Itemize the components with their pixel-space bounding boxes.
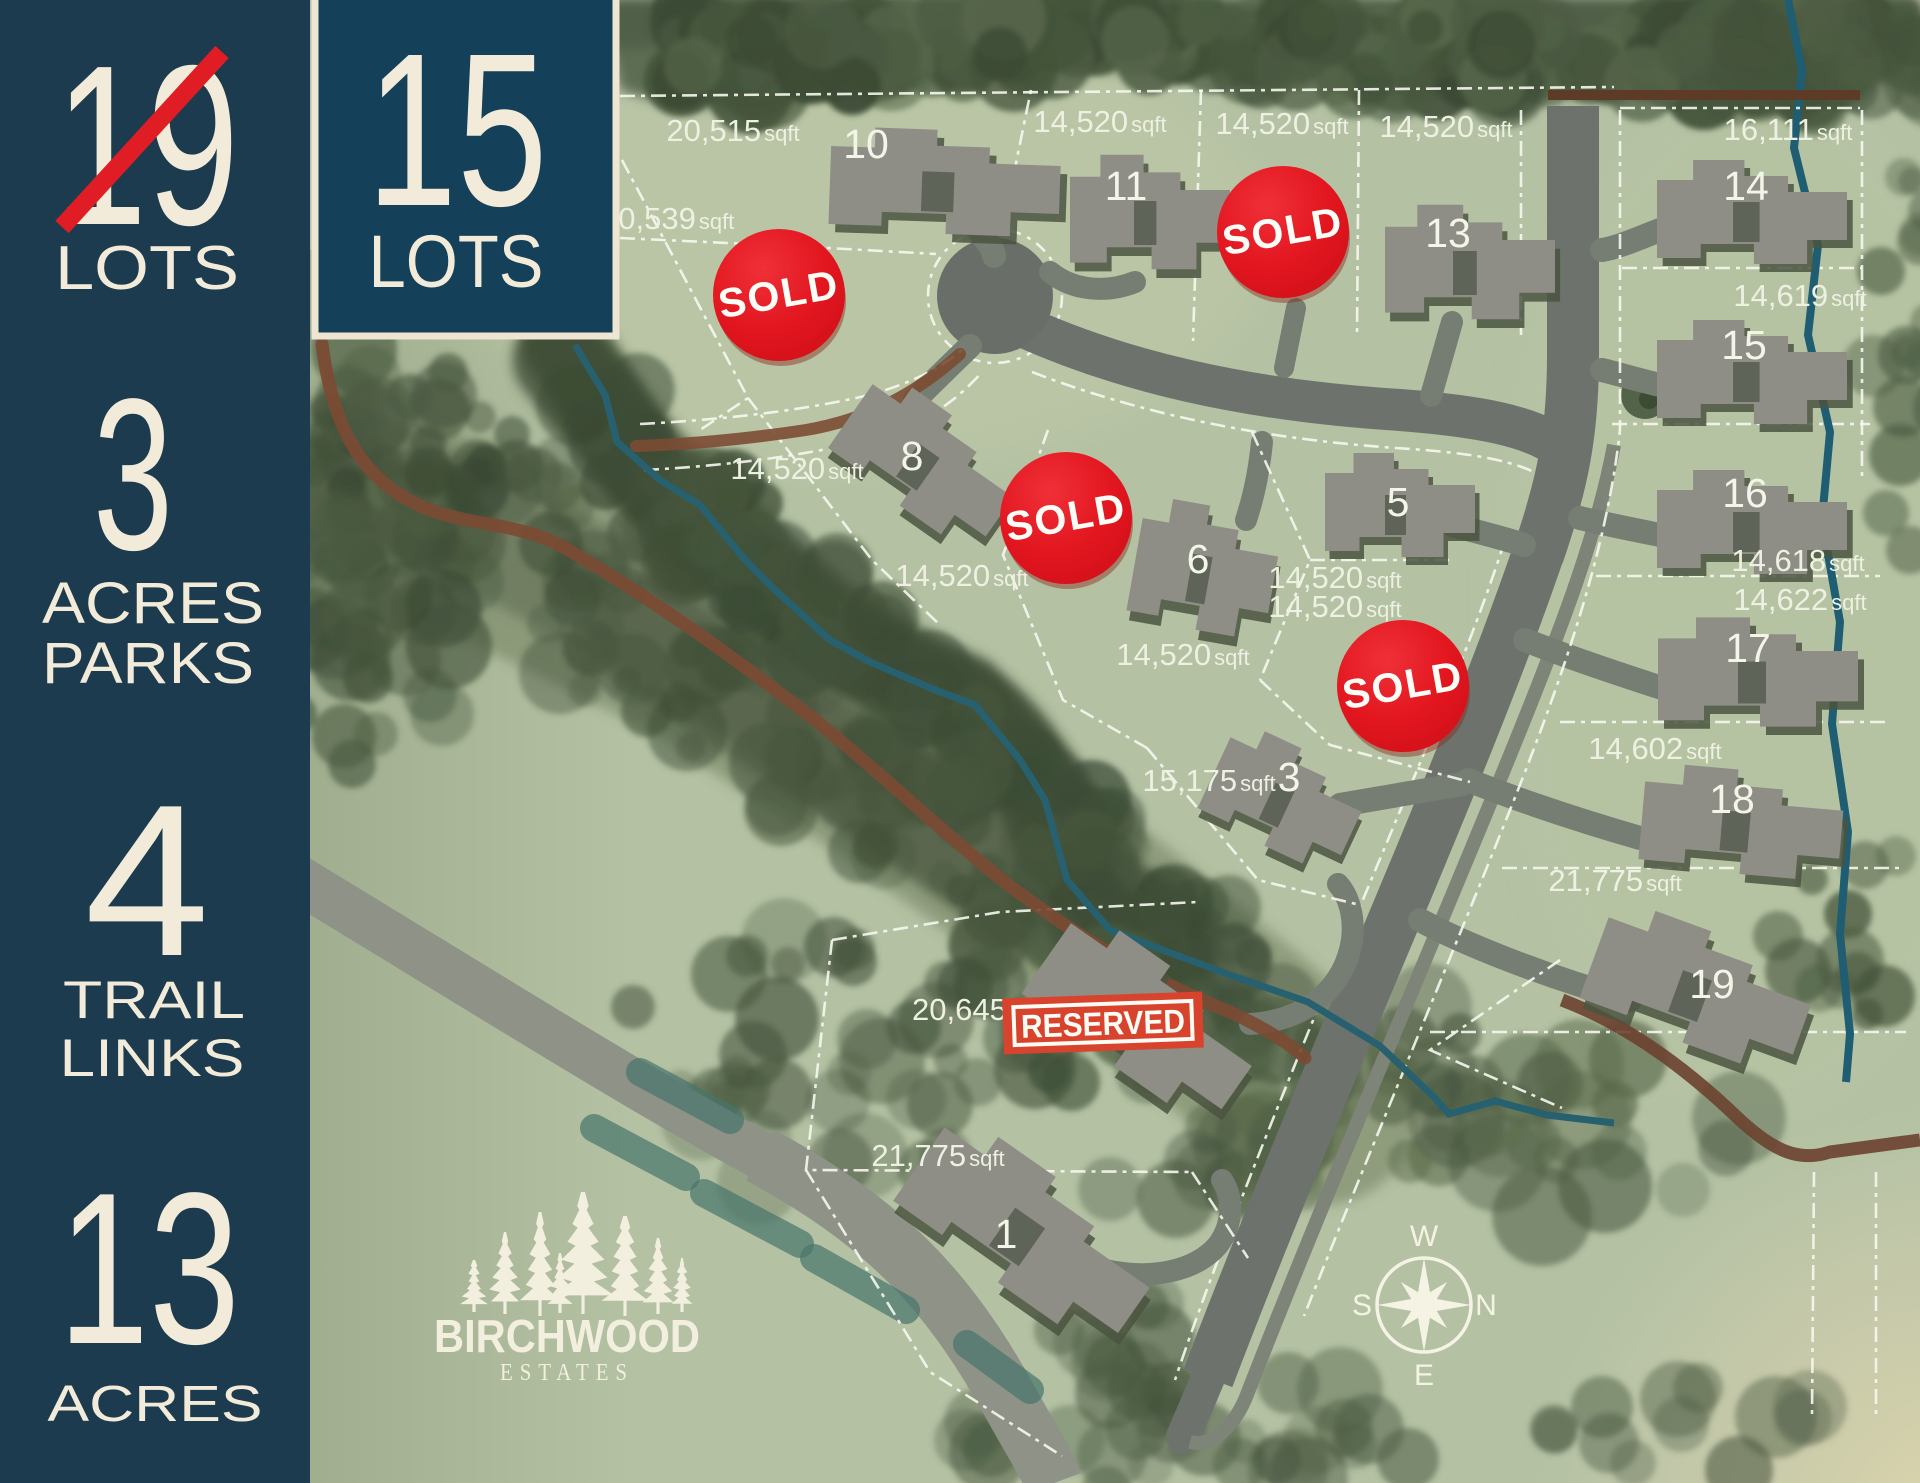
svg-text:15: 15 bbox=[367, 9, 548, 252]
svg-text:PARKS: PARKS bbox=[42, 631, 254, 696]
svg-text:ACRES: ACRES bbox=[48, 1375, 263, 1432]
svg-text:4: 4 bbox=[85, 759, 210, 1001]
svg-text:1: 1 bbox=[995, 1211, 1018, 1257]
svg-text:BIRCHWOOD: BIRCHWOOD bbox=[434, 1310, 700, 1362]
svg-text:W: W bbox=[1410, 1220, 1439, 1253]
svg-text:ESTATES: ESTATES bbox=[500, 1360, 634, 1386]
svg-text:E: E bbox=[1414, 1359, 1434, 1392]
svg-text:8: 8 bbox=[901, 433, 924, 479]
svg-text:TRAIL: TRAIL bbox=[63, 971, 245, 1030]
svg-text:11: 11 bbox=[1105, 163, 1148, 209]
svg-text:ACRES: ACRES bbox=[42, 571, 264, 636]
svg-text:17: 17 bbox=[1725, 625, 1771, 671]
svg-text:13: 13 bbox=[58, 1147, 240, 1389]
svg-text:3: 3 bbox=[1278, 754, 1301, 800]
svg-text:LINKS: LINKS bbox=[60, 1029, 245, 1088]
svg-text:3: 3 bbox=[93, 353, 173, 595]
svg-text:S: S bbox=[1352, 1289, 1372, 1322]
svg-text:13: 13 bbox=[1425, 210, 1471, 256]
svg-text:16: 16 bbox=[1722, 470, 1768, 516]
svg-text:5: 5 bbox=[1387, 479, 1410, 525]
svg-text:15: 15 bbox=[1721, 322, 1767, 368]
svg-text:LOTS: LOTS bbox=[55, 234, 239, 303]
svg-text:N: N bbox=[1475, 1289, 1497, 1322]
svg-text:LOTS: LOTS bbox=[369, 220, 544, 303]
svg-text:10: 10 bbox=[843, 121, 889, 167]
svg-text:19: 19 bbox=[1689, 961, 1735, 1007]
svg-text:18: 18 bbox=[1709, 776, 1755, 822]
svg-text:RESERVED: RESERVED bbox=[1020, 1002, 1185, 1045]
svg-text:6: 6 bbox=[1187, 536, 1210, 582]
svg-text:14: 14 bbox=[1723, 163, 1769, 209]
